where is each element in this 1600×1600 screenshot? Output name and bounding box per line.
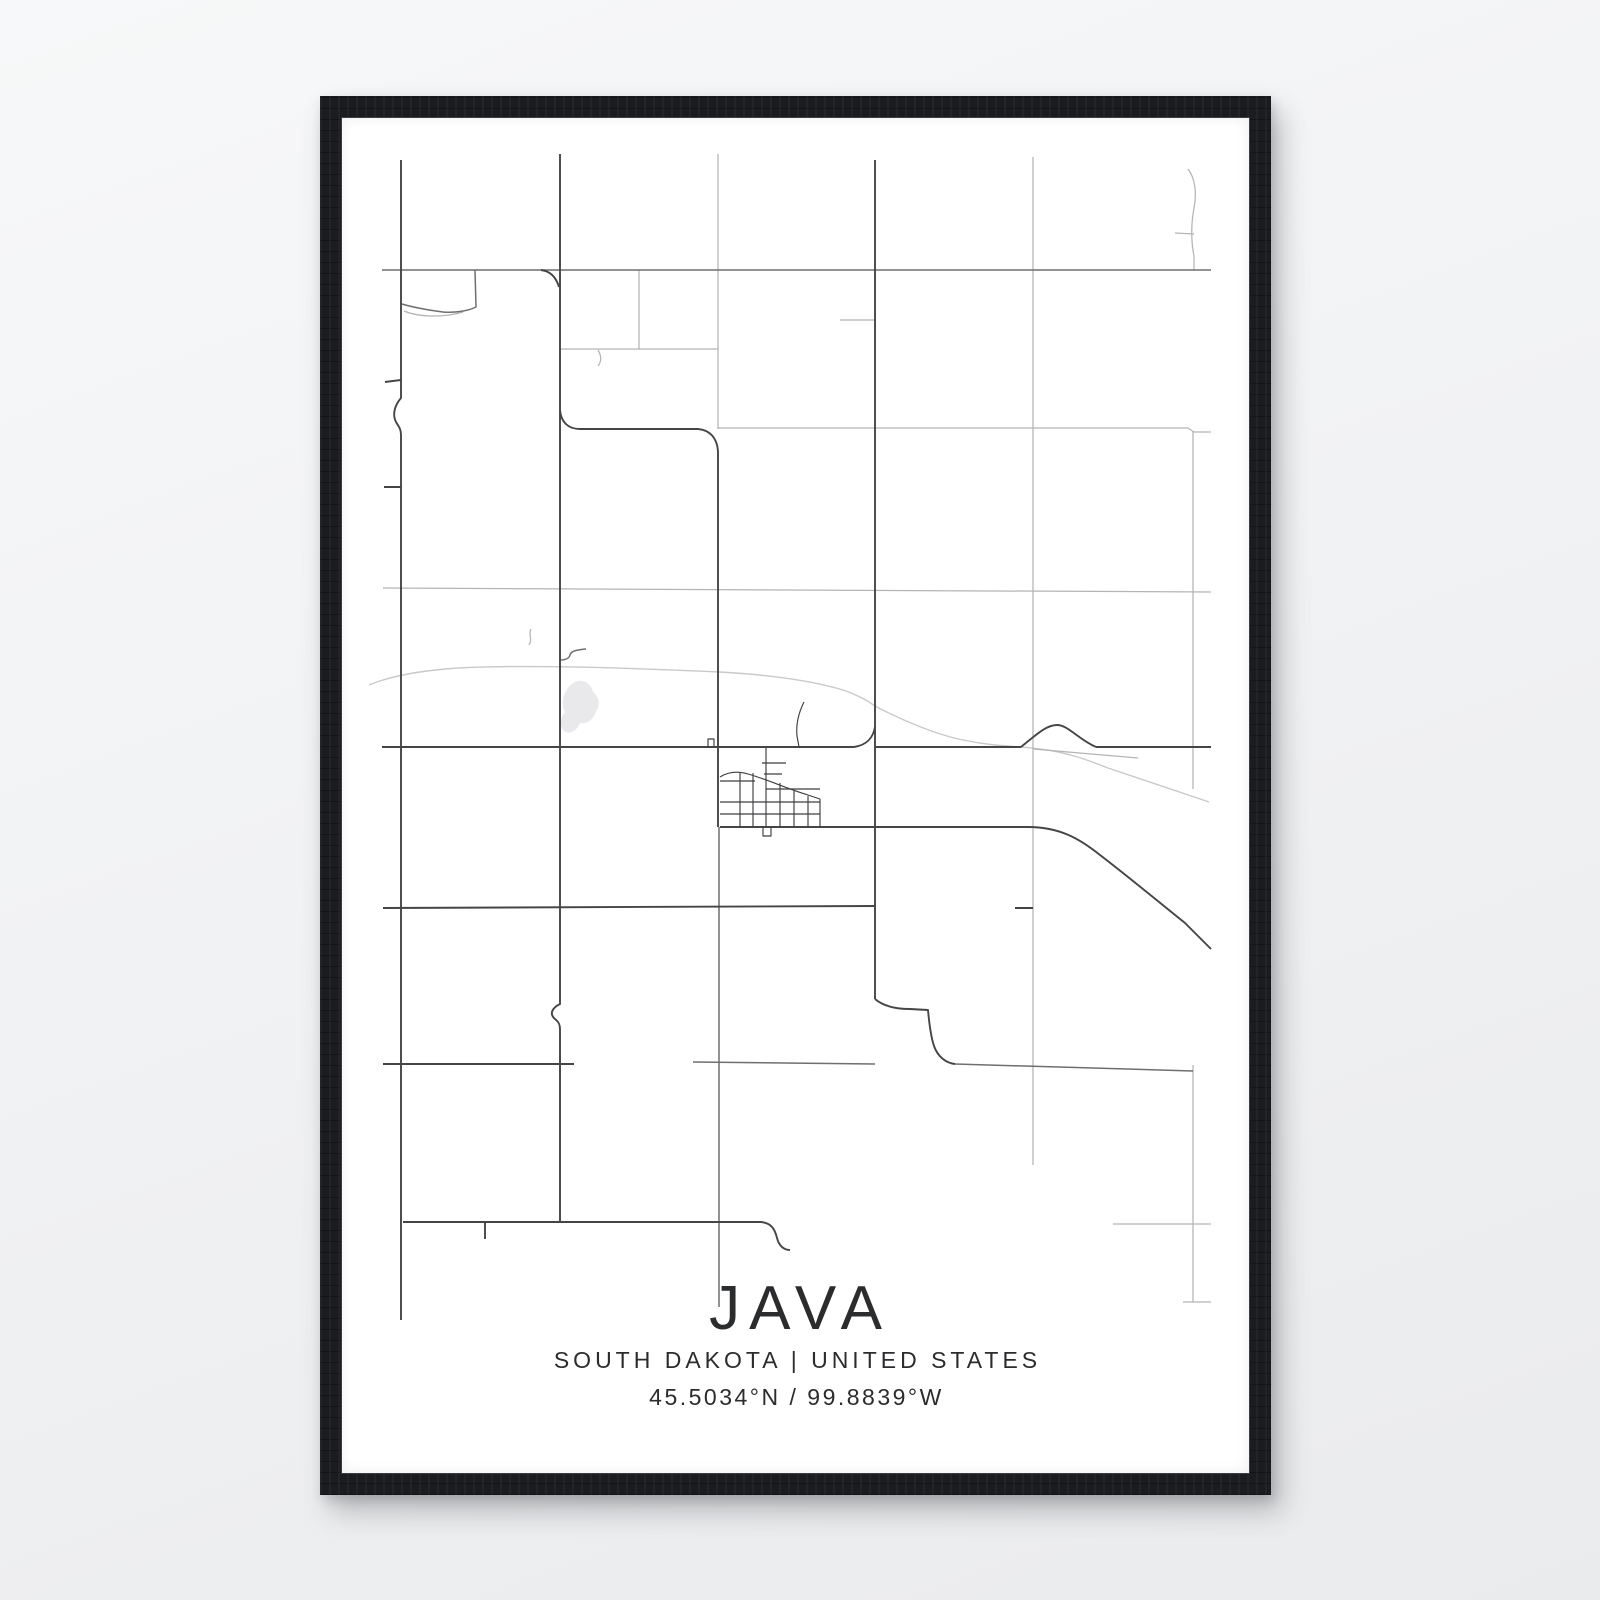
secondary-road <box>693 1062 875 1064</box>
minor-road <box>383 588 1211 592</box>
minor-road <box>718 428 1211 432</box>
wall-background: JAVA SOUTH DAKOTA | UNITED STATES 45.503… <box>0 0 1600 1600</box>
town-street <box>797 702 804 748</box>
railroad-line <box>369 667 1209 802</box>
major-road <box>552 154 560 1222</box>
minor-road <box>598 350 601 366</box>
minor-road <box>1188 169 1195 270</box>
map-canvas <box>342 118 1249 1473</box>
major-road <box>383 906 875 908</box>
minor-road <box>529 629 531 645</box>
poster-frame: JAVA SOUTH DAKOTA | UNITED STATES 45.503… <box>320 96 1271 1495</box>
major-road <box>875 999 955 1064</box>
lake-shape <box>561 681 599 733</box>
major-road <box>541 270 559 287</box>
major-road <box>385 380 401 382</box>
minor-road <box>1033 749 1138 758</box>
town-street <box>763 827 771 836</box>
secondary-road <box>402 270 476 312</box>
secondary-road <box>955 1064 1193 1071</box>
major-road <box>720 827 1211 949</box>
major-road <box>403 1222 790 1250</box>
secondary-road <box>560 649 586 660</box>
major-road <box>560 410 718 827</box>
town-street <box>720 772 820 799</box>
major-road <box>1021 725 1096 747</box>
major-road <box>854 727 875 747</box>
poster-paper: JAVA SOUTH DAKOTA | UNITED STATES 45.503… <box>342 118 1249 1473</box>
major-road <box>394 160 401 1320</box>
